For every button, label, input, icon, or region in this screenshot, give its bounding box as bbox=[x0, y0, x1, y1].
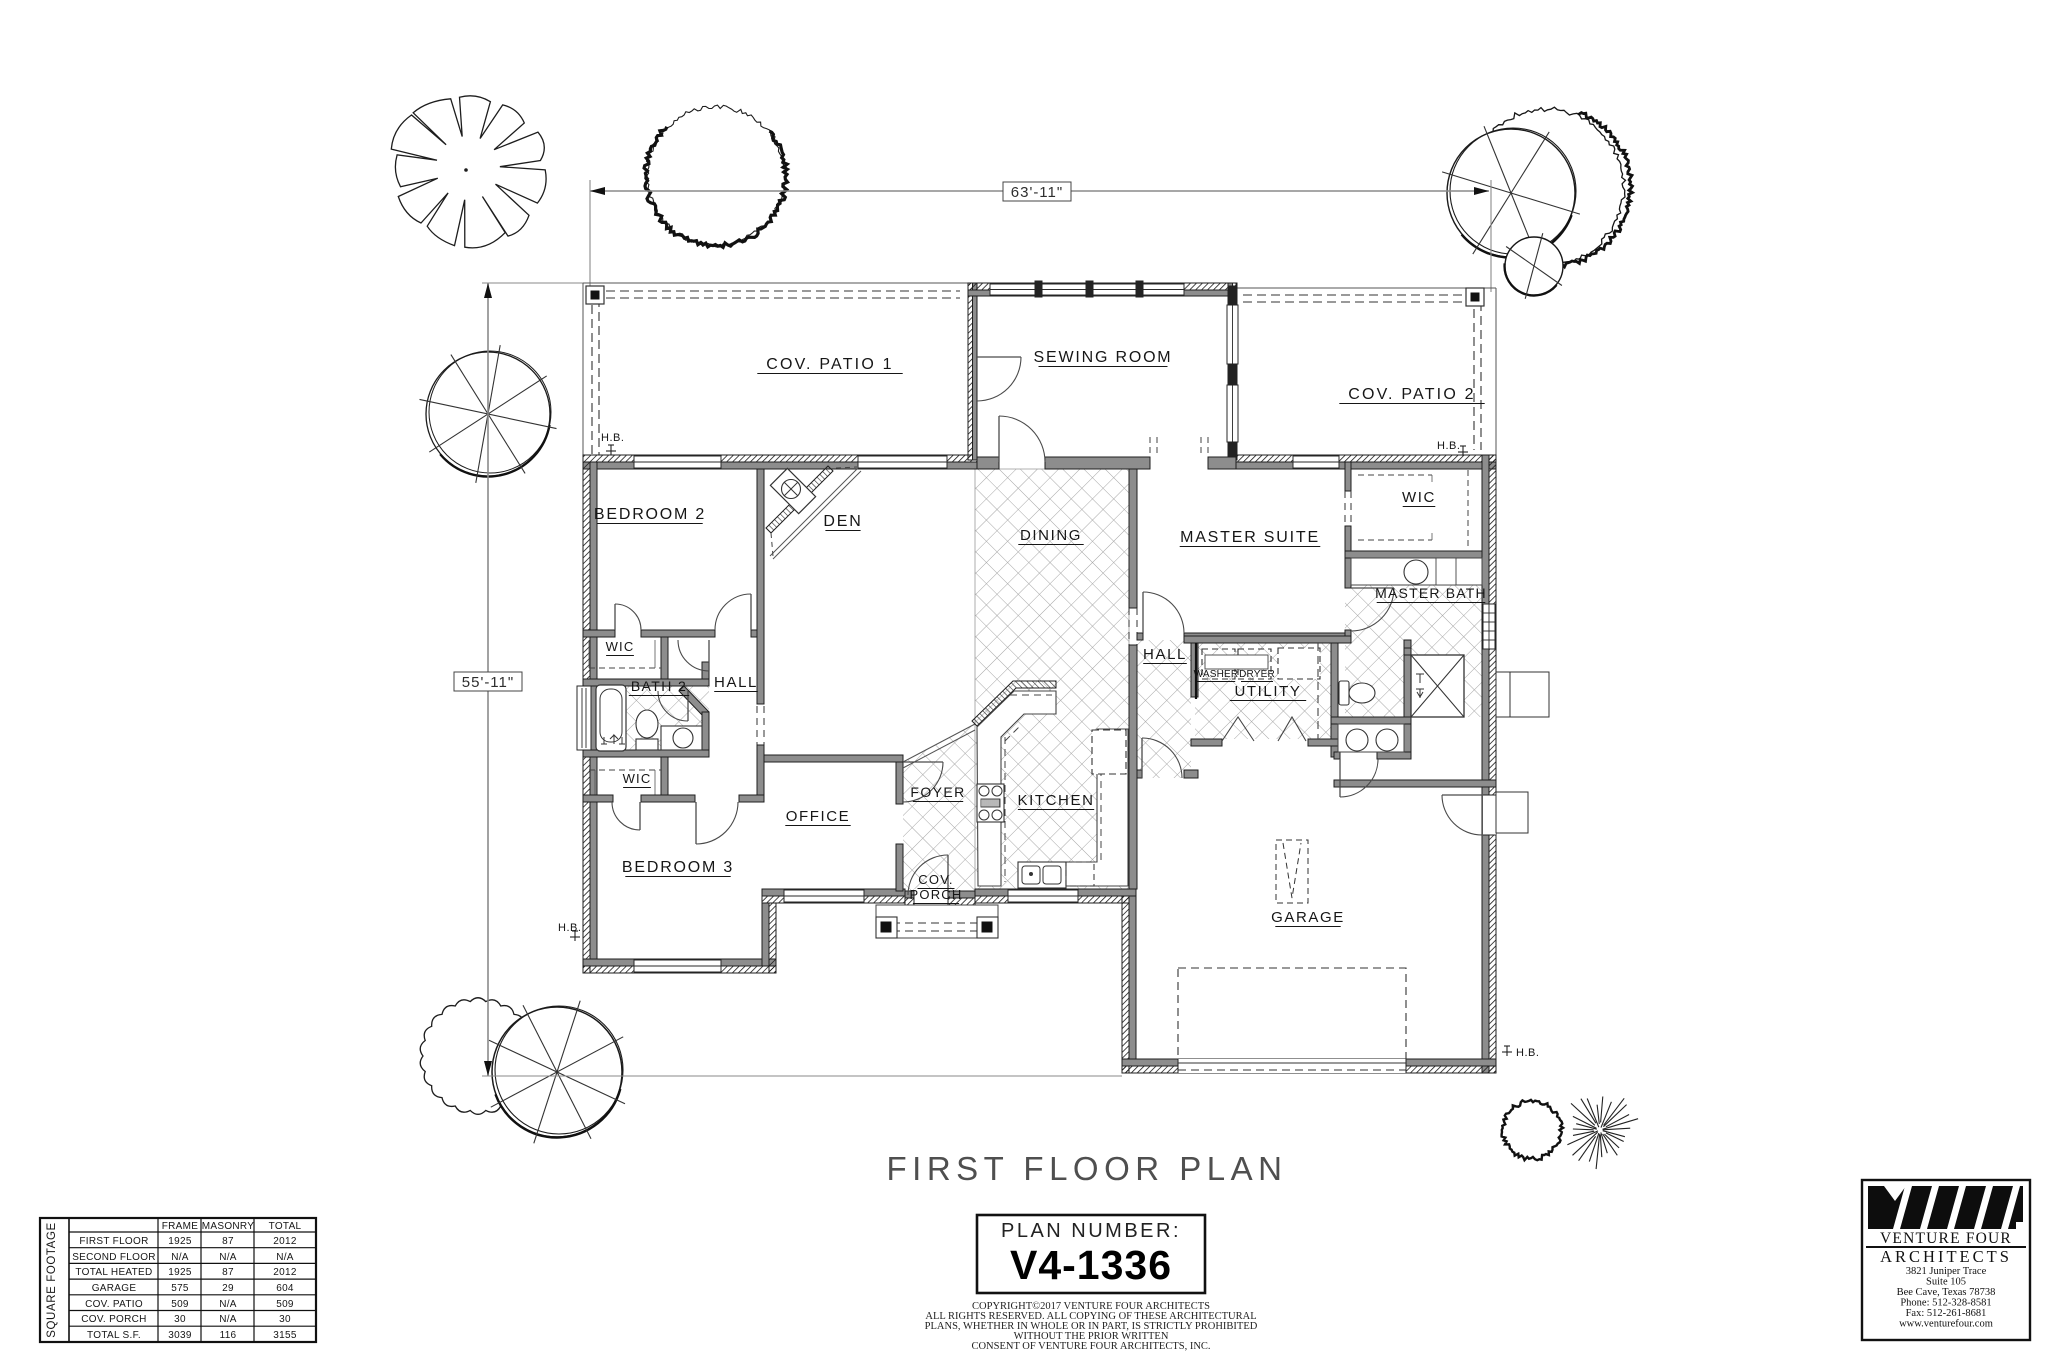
svg-text:COV. PORCH: COV. PORCH bbox=[81, 1314, 146, 1325]
svg-text:www.venturefour.com: www.venturefour.com bbox=[1899, 1319, 1993, 1330]
svg-text:DEN: DEN bbox=[823, 513, 862, 530]
svg-text:MASTER BATH: MASTER BATH bbox=[1375, 585, 1487, 601]
svg-text:575: 575 bbox=[171, 1283, 189, 1294]
svg-text:29: 29 bbox=[222, 1283, 234, 1294]
svg-text:3039: 3039 bbox=[168, 1330, 192, 1341]
svg-text:KITCHEN: KITCHEN bbox=[1017, 792, 1094, 809]
svg-text:3155: 3155 bbox=[273, 1330, 297, 1341]
svg-text:PORCH: PORCH bbox=[910, 887, 963, 902]
svg-text:VENTURE FOUR: VENTURE FOUR bbox=[1880, 1230, 2012, 1247]
svg-text:COV.: COV. bbox=[918, 872, 953, 887]
svg-text:509: 509 bbox=[171, 1299, 189, 1310]
svg-text:GARAGE: GARAGE bbox=[92, 1283, 137, 1294]
svg-text:1925: 1925 bbox=[168, 1236, 192, 1247]
svg-text:H.B.: H.B. bbox=[1516, 1047, 1539, 1059]
svg-text:OFFICE: OFFICE bbox=[786, 808, 851, 825]
svg-text:COV. PATIO: COV. PATIO bbox=[85, 1299, 143, 1310]
svg-text:2012: 2012 bbox=[273, 1267, 297, 1278]
svg-text:TOTAL HEATED: TOTAL HEATED bbox=[75, 1267, 152, 1278]
svg-text:Phone: 512-328-8581: Phone: 512-328-8581 bbox=[1900, 1298, 1991, 1309]
svg-text:DINING: DINING bbox=[1020, 527, 1082, 544]
svg-text:FIRST FLOOR: FIRST FLOOR bbox=[79, 1236, 148, 1247]
svg-text:604: 604 bbox=[276, 1283, 294, 1294]
svg-text:N/A: N/A bbox=[276, 1252, 294, 1263]
svg-text:H.B.: H.B. bbox=[558, 922, 581, 934]
svg-text:BATH 2: BATH 2 bbox=[631, 678, 687, 694]
svg-text:30: 30 bbox=[174, 1314, 186, 1325]
svg-text:FOYER: FOYER bbox=[910, 784, 965, 800]
svg-text:N/A: N/A bbox=[219, 1314, 237, 1325]
svg-text:30: 30 bbox=[279, 1314, 291, 1325]
svg-text:HALL: HALL bbox=[714, 674, 758, 691]
svg-text:63'-11": 63'-11" bbox=[1011, 184, 1063, 201]
svg-text:ARCHITECTS: ARCHITECTS bbox=[1880, 1247, 2012, 1266]
svg-text:Fax: 512-261-8681: Fax: 512-261-8681 bbox=[1906, 1308, 1987, 1319]
svg-text:509: 509 bbox=[276, 1299, 294, 1310]
svg-text:SQUARE FOOTAGE: SQUARE FOOTAGE bbox=[46, 1222, 58, 1338]
svg-text:3821 Juniper Trace: 3821 Juniper Trace bbox=[1906, 1266, 1987, 1277]
svg-text:87: 87 bbox=[222, 1236, 234, 1247]
svg-text:H.B.: H.B. bbox=[1437, 440, 1460, 452]
svg-text:PLAN NUMBER:: PLAN NUMBER: bbox=[1001, 1220, 1181, 1242]
svg-text:FRAME: FRAME bbox=[162, 1221, 199, 1232]
svg-text:BEDROOM 2: BEDROOM 2 bbox=[594, 506, 706, 523]
svg-text:87: 87 bbox=[222, 1267, 234, 1278]
svg-text:GARAGE: GARAGE bbox=[1271, 909, 1345, 926]
svg-text:1925: 1925 bbox=[168, 1267, 192, 1278]
svg-text:BEDROOM 3: BEDROOM 3 bbox=[622, 859, 734, 876]
svg-text:2012: 2012 bbox=[273, 1236, 297, 1247]
svg-text:WASHER: WASHER bbox=[1194, 669, 1239, 680]
svg-text:TOTAL S.F.: TOTAL S.F. bbox=[87, 1330, 141, 1341]
svg-text:TOTAL: TOTAL bbox=[269, 1221, 302, 1232]
svg-text:SECOND FLOOR: SECOND FLOOR bbox=[72, 1252, 156, 1263]
svg-text:H.B.: H.B. bbox=[601, 432, 624, 444]
svg-text:WIC: WIC bbox=[1402, 489, 1436, 506]
svg-text:55'-11": 55'-11" bbox=[462, 674, 514, 691]
svg-text:SEWING ROOM: SEWING ROOM bbox=[1034, 349, 1173, 366]
svg-text:COV. PATIO 1: COV. PATIO 1 bbox=[766, 356, 893, 373]
svg-text:N/A: N/A bbox=[219, 1299, 237, 1310]
svg-text:116: 116 bbox=[220, 1330, 237, 1341]
svg-text:COV. PATIO 2: COV. PATIO 2 bbox=[1348, 386, 1475, 403]
svg-text:WIC: WIC bbox=[623, 771, 652, 786]
svg-text:V4-1336: V4-1336 bbox=[1010, 1242, 1172, 1288]
svg-text:Suite 105: Suite 105 bbox=[1926, 1277, 1966, 1288]
svg-text:MASONRY: MASONRY bbox=[202, 1221, 255, 1232]
svg-text:FIRST FLOOR PLAN: FIRST FLOOR PLAN bbox=[887, 1150, 1288, 1187]
svg-text:N/A: N/A bbox=[171, 1252, 189, 1263]
svg-text:N/A: N/A bbox=[219, 1252, 237, 1263]
svg-text:Bee Cave, Texas 78738: Bee Cave, Texas 78738 bbox=[1897, 1287, 1996, 1298]
svg-text:UTILITY: UTILITY bbox=[1234, 683, 1301, 700]
svg-text:MASTER SUITE: MASTER SUITE bbox=[1180, 529, 1320, 546]
svg-text:HALL: HALL bbox=[1143, 646, 1187, 663]
svg-text:WIC: WIC bbox=[606, 639, 635, 654]
svg-text:DRYER: DRYER bbox=[1239, 669, 1275, 680]
svg-text:CONSENT OF VENTURE FOUR ARCHIT: CONSENT OF VENTURE FOUR ARCHITECTS, INC. bbox=[971, 1341, 1210, 1352]
